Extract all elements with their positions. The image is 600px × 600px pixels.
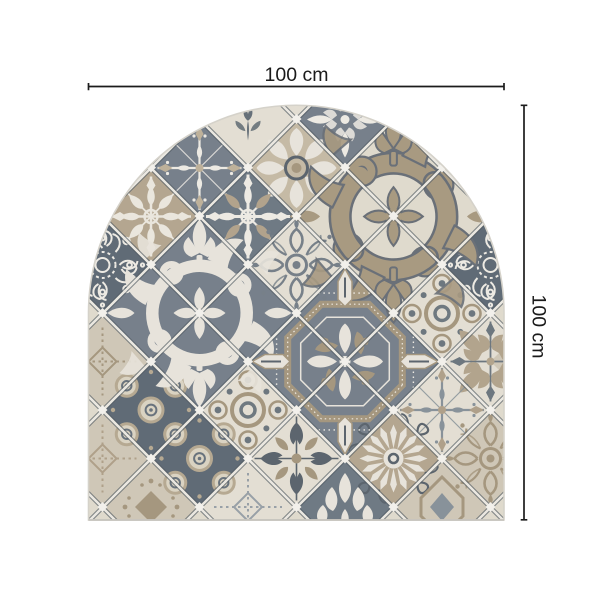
svg-text:100 cm: 100 cm [527, 295, 549, 359]
svg-text:100 cm: 100 cm [265, 64, 329, 86]
